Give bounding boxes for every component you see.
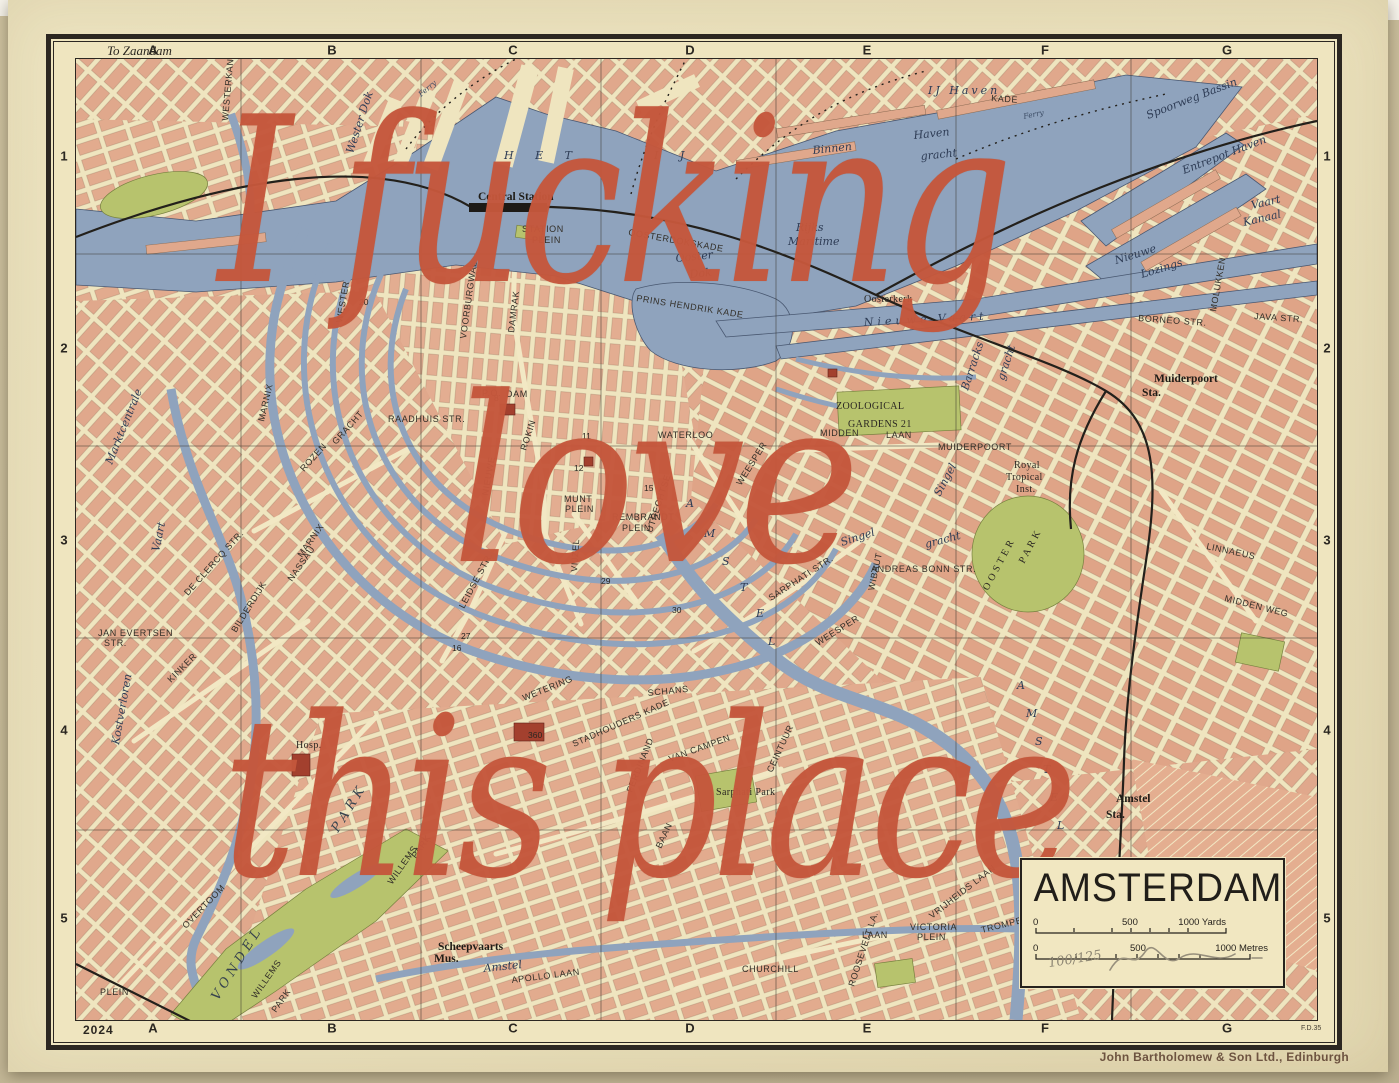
- grid-index-label: B: [327, 43, 336, 58]
- grid-index-label: F: [1041, 1021, 1049, 1036]
- grid-index-label: 4: [60, 723, 67, 738]
- map-label: ANDREAS BONN STR.: [871, 564, 976, 574]
- map-label: Mus.: [434, 953, 459, 965]
- art-print-paper: To Zaandam 2024 F.D.35 AABBCCDDEEFFGG112…: [8, 0, 1388, 1072]
- overlay-text-line3: this place: [222, 688, 1071, 910]
- grid-index-label: E: [863, 1021, 872, 1036]
- metres-end: 1000 Metres: [1215, 943, 1268, 954]
- metres-mid: 500: [1130, 943, 1146, 954]
- overlay-text-line2: love: [452, 368, 853, 598]
- grid-index-label: 1: [60, 149, 67, 164]
- grid-index-label: G: [1222, 1021, 1232, 1036]
- grid-index-label: B: [327, 1021, 336, 1036]
- map-label: LAAN: [886, 430, 912, 440]
- map-label: PLEIN: [917, 932, 946, 942]
- yards-end: 1000 Yards: [1178, 917, 1226, 928]
- yards-zero: 0: [1033, 917, 1038, 928]
- plate-reference-number: F.D.35: [1301, 1025, 1321, 1032]
- grid-index-label: 5: [60, 911, 67, 926]
- plate-year: 2024: [83, 1023, 114, 1037]
- grid-index-label: 5: [1323, 911, 1330, 926]
- map-label: MUIDERPOORT: [938, 442, 1012, 452]
- map-title: AMSTERDAM: [1034, 866, 1272, 911]
- grid-index-label: 2: [1323, 341, 1330, 356]
- grid-index-label: 1: [1323, 149, 1330, 164]
- map-label: 27: [461, 631, 471, 641]
- map-label: L: [767, 635, 775, 648]
- grid-index-label: 2: [60, 341, 67, 356]
- map-label: Sta.: [1106, 809, 1125, 821]
- grid-index-label: A: [148, 43, 157, 58]
- map-label: Amstel: [1116, 793, 1151, 805]
- publisher-caption: John Bartholomew & Son Ltd., Edinburgh: [1100, 1050, 1349, 1064]
- map-label: JAN EVERTSEN: [98, 628, 173, 638]
- overlay-text-line1: I fucking: [218, 88, 1007, 318]
- grid-index-label: 3: [1323, 533, 1330, 548]
- grid-index-label: 3: [60, 533, 67, 548]
- grid-index-label: D: [685, 43, 694, 58]
- map-label: Muiderpoort: [1154, 373, 1218, 385]
- map-label: Inst.: [1016, 484, 1036, 495]
- grid-index-label: F: [1041, 43, 1049, 58]
- map-label: Royal: [1014, 460, 1040, 471]
- map-label: Sta.: [1142, 387, 1161, 399]
- grid-index-label: C: [508, 1021, 517, 1036]
- grid-index-label: G: [1222, 43, 1232, 58]
- grid-index-label: 4: [1323, 723, 1330, 738]
- map-title-box: AMSTERDAM 0 500 1000 Yards 0 500 1000 Me…: [1020, 858, 1285, 988]
- map-label: CHURCHILL: [742, 964, 799, 974]
- map-label: Tropical: [1006, 472, 1043, 483]
- map-label: STR.: [104, 638, 127, 648]
- metres-zero: 0: [1033, 943, 1038, 954]
- grid-index-label: A: [148, 1021, 157, 1036]
- map-label: PLEIN: [100, 987, 129, 997]
- grid-index-label: D: [685, 1021, 694, 1036]
- map-label: Scheepvaarts: [438, 941, 504, 953]
- grid-index-label: E: [863, 43, 872, 58]
- photographed-art-print: { "artwork": { "overlay": { "line1": "I …: [0, 0, 1399, 1083]
- map-label: 16: [452, 643, 462, 653]
- to-zaandam-label: To Zaandam: [107, 43, 172, 59]
- grid-index-label: C: [508, 43, 517, 58]
- yards-mid: 500: [1122, 917, 1138, 928]
